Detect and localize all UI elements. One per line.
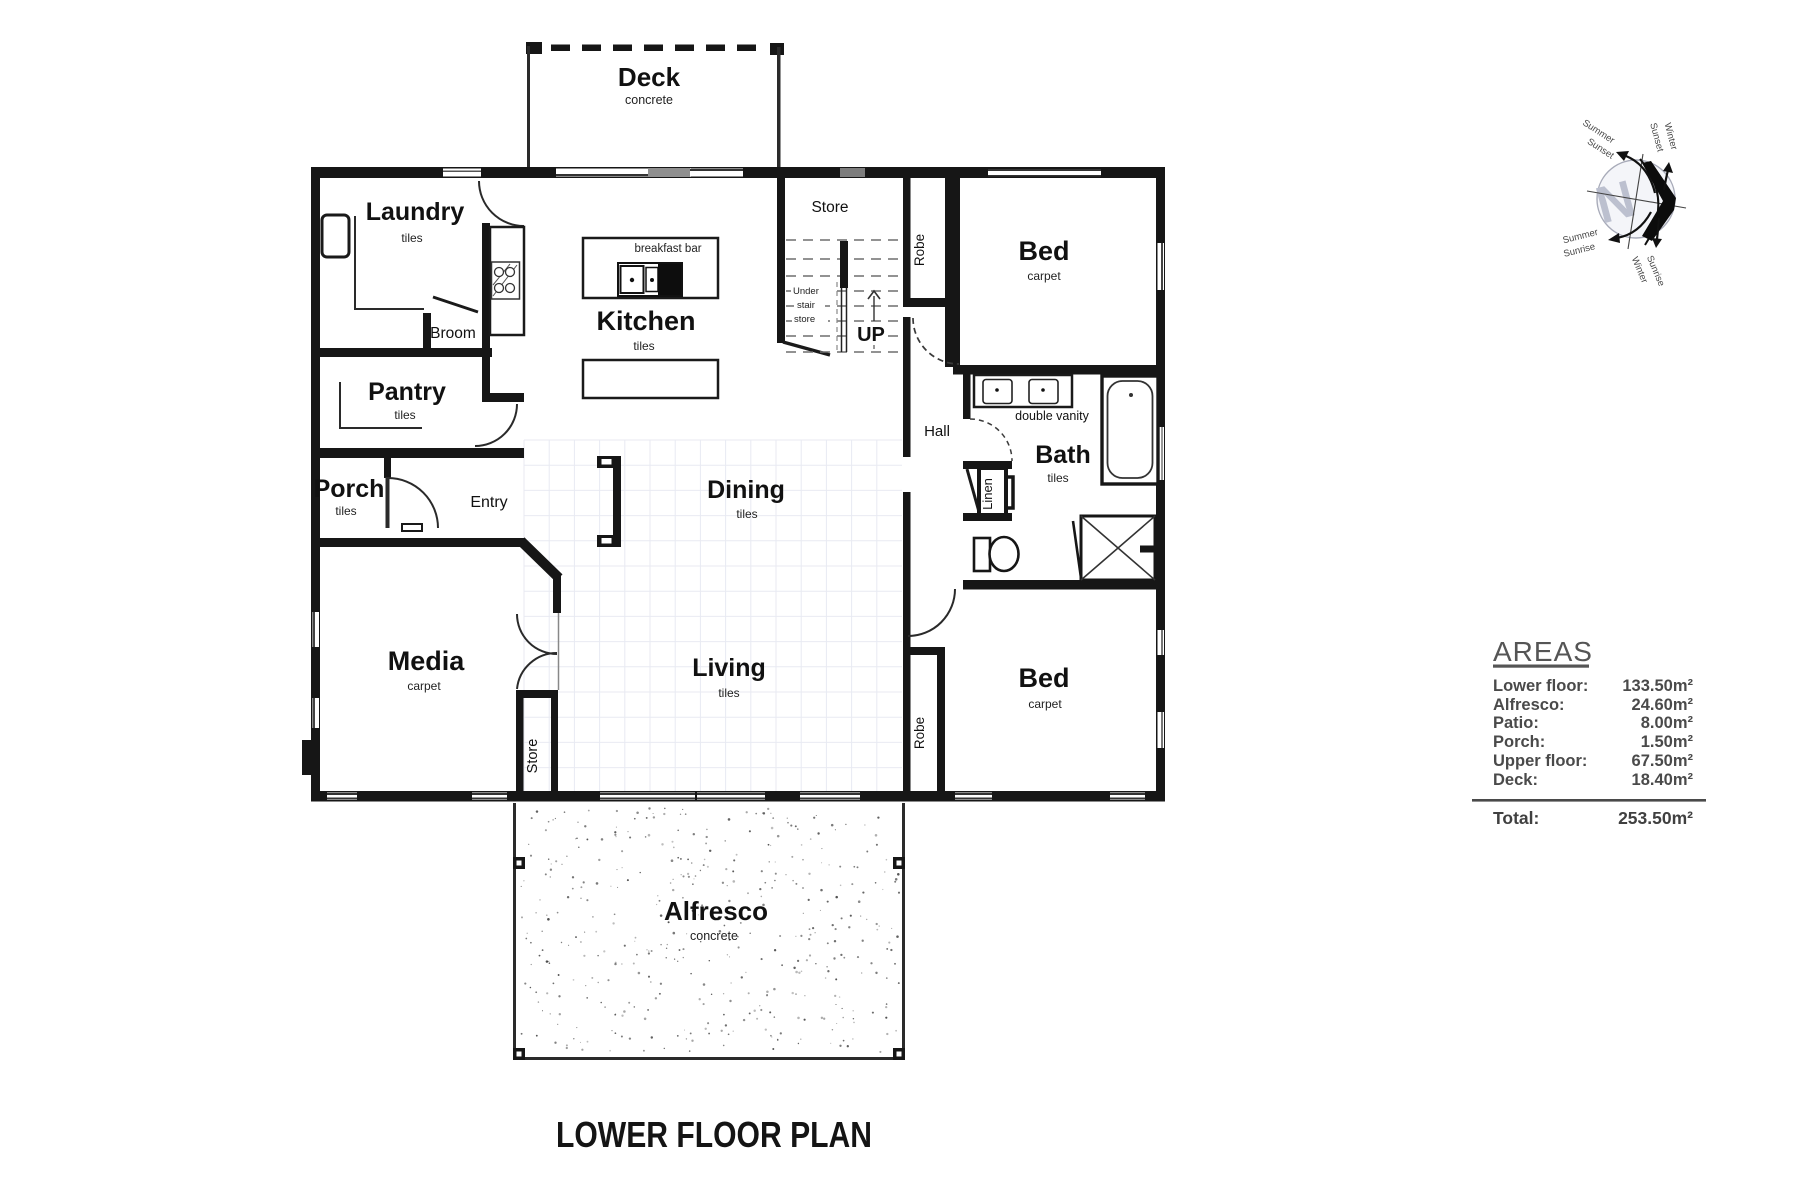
svg-text:Deck: Deck	[618, 62, 681, 92]
svg-text:tiles: tiles	[633, 339, 654, 353]
svg-text:tiles: tiles	[401, 231, 422, 245]
svg-text:Dining: Dining	[707, 476, 785, 504]
svg-text:Upper floor:: Upper floor:	[1493, 752, 1587, 770]
svg-text:18.40m²: 18.40m²	[1632, 771, 1694, 789]
svg-text:concrete: concrete	[625, 93, 673, 107]
svg-text:tiles: tiles	[1047, 471, 1068, 485]
svg-text:Bed: Bed	[1018, 236, 1069, 266]
svg-text:Pantry: Pantry	[368, 378, 446, 406]
svg-text:breakfast bar: breakfast bar	[634, 243, 701, 255]
svg-text:Laundry: Laundry	[366, 198, 465, 226]
svg-text:tiles: tiles	[718, 686, 739, 700]
svg-text:LOWER FLOOR PLAN: LOWER FLOOR PLAN	[556, 1114, 872, 1155]
svg-text:Total:: Total:	[1493, 808, 1539, 828]
svg-text:Store: Store	[525, 739, 541, 774]
svg-text:AREAS: AREAS	[1493, 636, 1593, 667]
svg-text:stair: stair	[797, 300, 815, 311]
svg-text:store: store	[794, 314, 815, 325]
svg-text:Alfresco: Alfresco	[664, 896, 768, 926]
svg-text:Porch:: Porch:	[1493, 733, 1545, 751]
svg-text:Kitchen: Kitchen	[596, 306, 695, 336]
svg-text:Porch: Porch	[314, 475, 385, 503]
svg-text:8.00m²: 8.00m²	[1641, 714, 1694, 732]
svg-text:67.50m²: 67.50m²	[1632, 752, 1694, 770]
svg-text:Bed: Bed	[1018, 663, 1069, 693]
svg-text:carpet: carpet	[1027, 269, 1061, 283]
svg-text:Bath: Bath	[1035, 441, 1091, 469]
svg-text:253.50m²: 253.50m²	[1618, 808, 1693, 828]
svg-text:Lower floor:: Lower floor:	[1493, 677, 1588, 695]
svg-text:Deck:: Deck:	[1493, 771, 1538, 789]
svg-text:133.50m²: 133.50m²	[1622, 677, 1693, 695]
svg-text:24.60m²: 24.60m²	[1632, 696, 1694, 714]
svg-text:concrete: concrete	[690, 929, 738, 943]
svg-text:Hall: Hall	[924, 423, 950, 440]
svg-text:Robe: Robe	[912, 717, 927, 749]
svg-text:Broom: Broom	[430, 325, 476, 342]
svg-text:Linen: Linen	[980, 478, 995, 510]
svg-text:carpet: carpet	[1028, 697, 1062, 711]
svg-text:Robe: Robe	[912, 234, 927, 266]
svg-text:1.50m²: 1.50m²	[1641, 733, 1694, 751]
svg-text:tiles: tiles	[335, 504, 356, 518]
svg-text:double vanity: double vanity	[1015, 409, 1089, 423]
svg-text:tiles: tiles	[736, 507, 757, 521]
svg-text:Store: Store	[811, 199, 848, 216]
svg-text:Alfresco:: Alfresco:	[1493, 696, 1565, 714]
svg-text:Living: Living	[692, 654, 766, 682]
svg-text:Media: Media	[388, 646, 466, 676]
svg-text:carpet: carpet	[407, 679, 441, 693]
svg-text:UP: UP	[857, 324, 885, 346]
svg-text:Patio:: Patio:	[1493, 714, 1539, 732]
svg-text:Under: Under	[793, 286, 819, 297]
svg-text:tiles: tiles	[394, 408, 415, 422]
svg-text:Entry: Entry	[470, 494, 507, 511]
